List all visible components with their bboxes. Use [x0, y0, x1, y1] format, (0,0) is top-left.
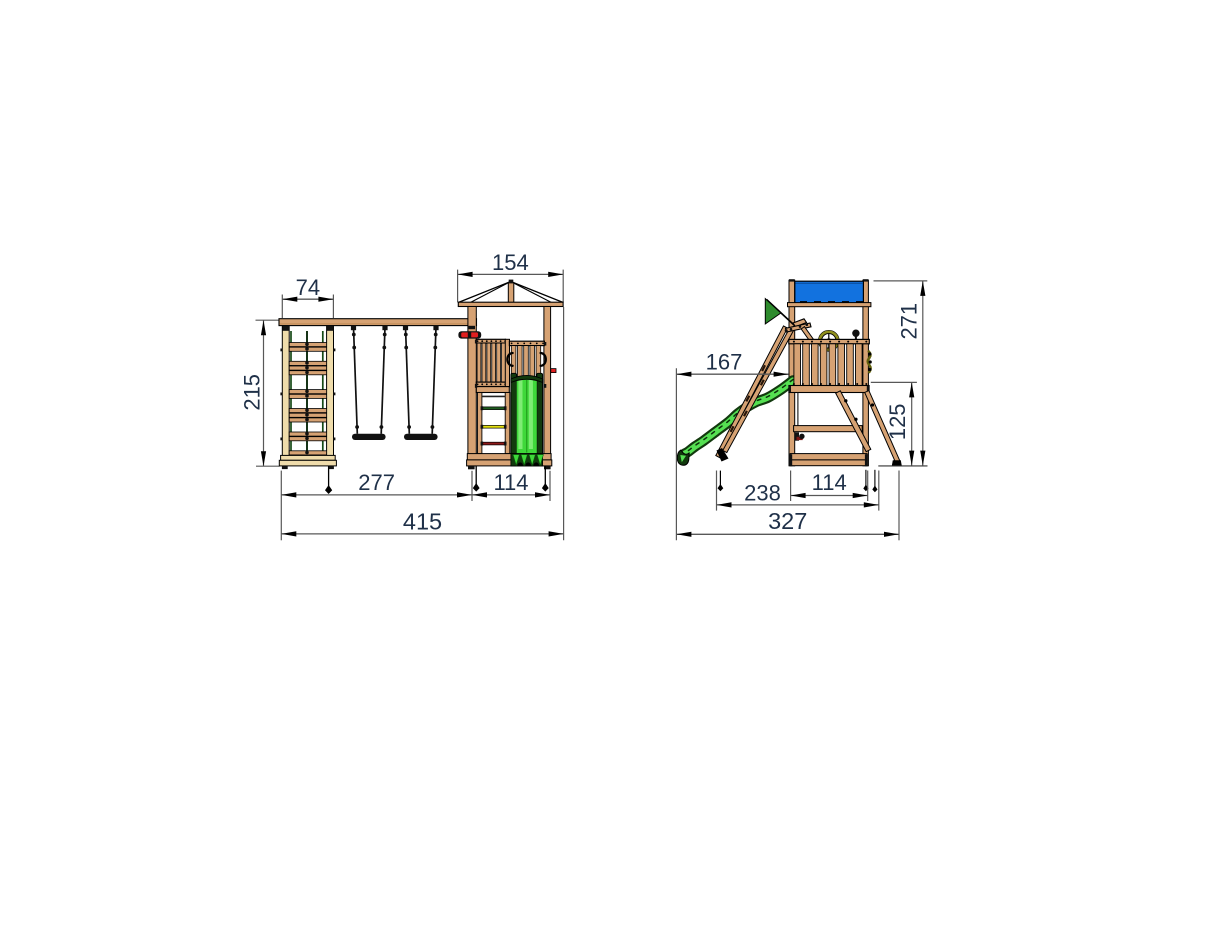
svg-text:277: 277: [358, 470, 395, 495]
svg-text:238: 238: [744, 480, 781, 505]
svg-text:167: 167: [706, 350, 743, 375]
svg-text:125: 125: [885, 403, 910, 440]
svg-text:74: 74: [296, 275, 320, 300]
svg-text:327: 327: [768, 508, 807, 534]
svg-text:215: 215: [239, 374, 264, 411]
svg-text:154: 154: [492, 250, 529, 275]
svg-text:114: 114: [812, 470, 847, 495]
svg-text:415: 415: [403, 508, 442, 534]
svg-text:271: 271: [897, 303, 922, 340]
svg-text:114: 114: [493, 470, 528, 495]
